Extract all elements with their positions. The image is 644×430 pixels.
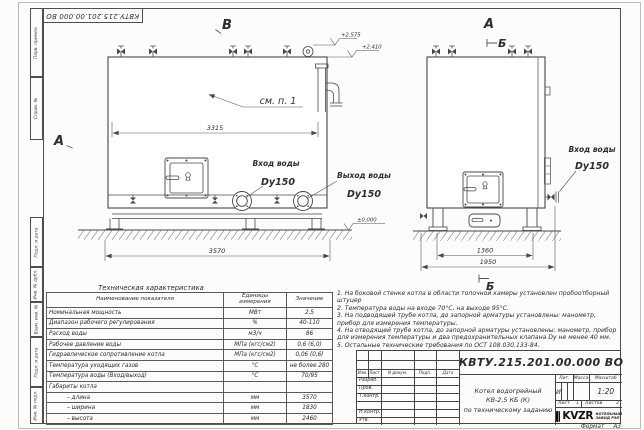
col-izm: Изм.: [357, 369, 368, 377]
sheet-count-row: Лист1 Листов2: [556, 401, 622, 408]
top-flange-icon: [303, 47, 313, 57]
boiler-front-view: [420, 46, 559, 231]
cell-value: 0,6 (6,0): [287, 339, 333, 350]
cell-name: Габариты котла: [47, 382, 224, 393]
cell-units: мм: [224, 413, 287, 424]
sheet-value: 1: [576, 401, 579, 407]
boiler-side-view: [106, 46, 343, 229]
note-4: 4. На отводящей трубе котла, до запорной…: [337, 327, 621, 342]
kvzr-logo-text: KVZR: [562, 410, 593, 422]
cell-value: не более 280: [287, 360, 333, 371]
valve-icon: [149, 46, 157, 57]
format-label: Формат: [581, 424, 605, 430]
title-block-right: Лит. Масса Масштаб И 1:20 Лист1 Листов2 …: [555, 375, 622, 425]
col-ndokum: N докум.: [381, 369, 414, 377]
cell-units: МВт: [224, 308, 287, 319]
cell-value: [287, 382, 333, 393]
frame-box-sprav: Справ. №: [30, 77, 43, 140]
mass-label: Масса: [574, 375, 590, 382]
valve-icon: [229, 46, 237, 57]
sheet-label: Лист: [558, 401, 570, 407]
see-item-note: см. п. 1: [260, 96, 297, 107]
cell-name: Температура воды (Вход/выход): [47, 371, 224, 382]
frame-label: Подп. и дата: [34, 347, 39, 377]
role-razrab: Разраб.: [359, 377, 378, 385]
table-row: Номинальная мощностьМВт2,5: [47, 308, 333, 319]
table-row: Габариты котла: [47, 382, 333, 393]
note-3: 3. На подводящей трубе котла, до запорно…: [337, 312, 621, 327]
format-note: Формат А3: [540, 424, 621, 430]
front-legs: [433, 208, 537, 227]
stamp-text: КВТУ.215.201.00.000 ВО: [46, 12, 139, 20]
frame-box-inv-podl: Инв. № подл.: [30, 387, 43, 424]
cell-name: Температура уходящих газов: [47, 360, 224, 371]
section-b-top-label: Б: [498, 37, 506, 50]
document-designation: КВТУ.215.201.00.000 ВО: [460, 351, 622, 375]
cell-value: 0,06 (0,6): [287, 350, 333, 361]
col-list: Лист: [368, 369, 381, 377]
role-tkontr: Т.контр.: [359, 393, 380, 401]
cell-units: [224, 382, 287, 393]
tech-characteristics-table: Наименование показателя Единицы измерени…: [46, 292, 333, 425]
table-header-row: Наименование показателя Единицы измерени…: [47, 293, 333, 308]
title-block: КВТУ.215.201.00.000 ВО Изм. Лист N докум…: [356, 350, 621, 424]
cell-name: Расход воды: [47, 329, 224, 340]
product-name-line3: по техническому заданию: [464, 406, 553, 414]
frame-box-inv-dubl: Инв. № дубл.: [30, 267, 43, 302]
product-name: Котел водогрейный КВ-2,5 КБ (К) по техни…: [461, 375, 555, 425]
frame-label: Инв. № дубл.: [34, 269, 39, 299]
cell-units: °С: [224, 360, 287, 371]
table-row: Диапазон рабочего регулирования%40-110: [47, 318, 333, 329]
frame-label: Взам. инв. №: [34, 305, 39, 335]
col-header-units: Единицы измерения: [224, 293, 287, 308]
boiler-body-front: [427, 57, 545, 208]
scale-label: Масштаб: [590, 375, 623, 382]
view-b-label: В: [222, 18, 232, 33]
frame-label: Справ. №: [34, 98, 39, 119]
company-logo: KVZR КОТЕЛЬНЫЙ ЗАВОД РЭП: [556, 408, 622, 424]
frame-box-podp-data-1: Подп. и дата: [30, 217, 43, 267]
cell-value: 86: [287, 329, 333, 340]
valve-icon: [283, 46, 291, 57]
view-a-front-label: А: [483, 17, 494, 32]
table-row: Гидравлическое сопротивление котлаМПа (к…: [47, 350, 333, 361]
frame-label: Инв. № подл.: [34, 390, 39, 420]
base-frame: [112, 214, 322, 219]
valve-icon: [508, 46, 516, 57]
inlet2-dn-label: Dy150: [575, 161, 609, 172]
lit-mass-scale-header: Лит. Масса Масштаб: [556, 375, 622, 383]
ground-left: [78, 230, 352, 240]
tech-table-title: Техническая характеристика: [46, 284, 256, 292]
note-5: 5. Остальные технические требования по О…: [337, 342, 621, 349]
cell-units: %: [224, 318, 287, 329]
col-data: Дата: [436, 369, 460, 377]
col-header-name: Наименование показателя: [47, 293, 224, 308]
cell-name: – ширина: [47, 403, 224, 414]
valve-icon: [524, 46, 532, 57]
valve-icon: [117, 46, 125, 57]
mass-value: [574, 383, 590, 400]
cell-name: Рабочее давление воды: [47, 339, 224, 350]
table-row: Расход водым3/ч86: [47, 329, 333, 340]
dim-1950: 1950: [480, 258, 497, 266]
cell-value: 2460: [287, 413, 333, 424]
inlet-flange: [233, 192, 252, 211]
table-row: – ширинамм1830: [47, 403, 333, 414]
format-value: А3: [613, 424, 621, 430]
inlet-dn-label: Dy150: [261, 177, 295, 188]
technical-notes: 1. На боковой стенке котла в области топ…: [337, 290, 621, 349]
cell-value: 2,5: [287, 308, 333, 319]
valve-icon: [432, 46, 440, 57]
elevation-mid: +2.410: [362, 45, 382, 51]
product-name-line1: Котел водогрейный: [474, 387, 541, 395]
cell-name: Номинальная мощность: [47, 308, 224, 319]
frame-box-vzam-inv: Взам. инв. №: [30, 302, 43, 337]
frame-label: Перв. примен.: [34, 26, 39, 59]
logo-sub-line2: ЗАВОД РЭП: [596, 416, 622, 420]
cell-value: 70/95: [287, 371, 333, 382]
cell-value: 1830: [287, 403, 333, 414]
outlet-water-label: Выход воды: [337, 171, 391, 180]
outlet-flange: [294, 192, 313, 211]
cell-name: – длина: [47, 392, 224, 403]
kvzr-logo-icon: [556, 411, 560, 422]
product-name-line2: КВ-2,5 КБ (К): [486, 396, 530, 404]
table-row: Рабочее давление водыМПа (кгс/см2)0,6 (6…: [47, 339, 333, 350]
role-utv: Утв.: [359, 417, 369, 425]
outlet-dn-label: Dy150: [347, 189, 381, 200]
inlet-water-label: Вход воды: [252, 159, 299, 168]
drawing-sheet: В А А Б Б см. п. 1 +2.575 +2.410 ±0.000 …: [0, 0, 644, 430]
cell-name: Гидравлическое сопротивление котла: [47, 350, 224, 361]
cell-name: – высота: [47, 413, 224, 424]
burner-panel: [469, 214, 500, 227]
sheets-value: 2: [616, 401, 619, 407]
scale-value: 1:20: [590, 383, 622, 400]
dim-3315: 3315: [207, 124, 224, 132]
col-podp: Подп.: [414, 369, 436, 377]
cell-units: °С: [224, 371, 287, 382]
role-prov: Пров.: [359, 385, 373, 393]
cell-value: 40-110: [287, 318, 333, 329]
left-stub-valve: [420, 213, 427, 219]
cell-units: мм: [224, 403, 287, 414]
role-nkontr: Н.контр.: [359, 409, 380, 417]
table-row: Температура уходящих газов°Сне более 280: [47, 360, 333, 371]
support-legs: [110, 219, 321, 230]
inlet2-water-label: Вход воды: [568, 145, 615, 154]
cell-units: МПа (кгс/см2): [224, 339, 287, 350]
revision-grid: Изм. Лист N докум. Подп. Дата Разраб. Пр…: [357, 351, 460, 425]
top-designation-stamp: КВТУ.215.201.00.000 ВО: [43, 8, 143, 23]
ground-right: [413, 231, 561, 241]
cell-name: Диапазон рабочего регулирования: [47, 318, 224, 329]
elevation-zero: ±0.000: [357, 218, 377, 224]
cell-units: м3/ч: [224, 329, 287, 340]
table-row: – длинамм3570: [47, 392, 333, 403]
lit-mass-scale-values: И 1:20: [556, 383, 622, 401]
valve-icon: [448, 46, 456, 57]
cell-value: 3570: [287, 392, 333, 403]
note-1: 1. На боковой стенке котла в области топ…: [337, 290, 621, 305]
valve-icon: [244, 46, 252, 57]
cell-units: мм: [224, 392, 287, 403]
side-valve-icon: [545, 192, 559, 203]
sheets-label: Листов: [585, 401, 602, 407]
view-a-side-label: А: [53, 134, 64, 149]
table-row: – высотамм2460: [47, 413, 333, 424]
side-stub: [545, 87, 550, 95]
col-header-value: Значение: [287, 293, 333, 308]
table-row: Температура воды (Вход/выход)°С70/95: [47, 371, 333, 382]
cell-units: МПа (кгс/см2): [224, 350, 287, 361]
elevation-top: +2.575: [341, 33, 361, 39]
lit-label: Лит.: [556, 375, 574, 382]
frame-box-podp-data-2: Подп. и дата: [30, 337, 43, 387]
dim-3570: 3570: [209, 247, 226, 255]
dim-1360: 1360: [477, 247, 494, 255]
frame-box-perv-primen: Перв. примен.: [30, 8, 43, 77]
frame-label: Подп. и дата: [34, 227, 39, 257]
